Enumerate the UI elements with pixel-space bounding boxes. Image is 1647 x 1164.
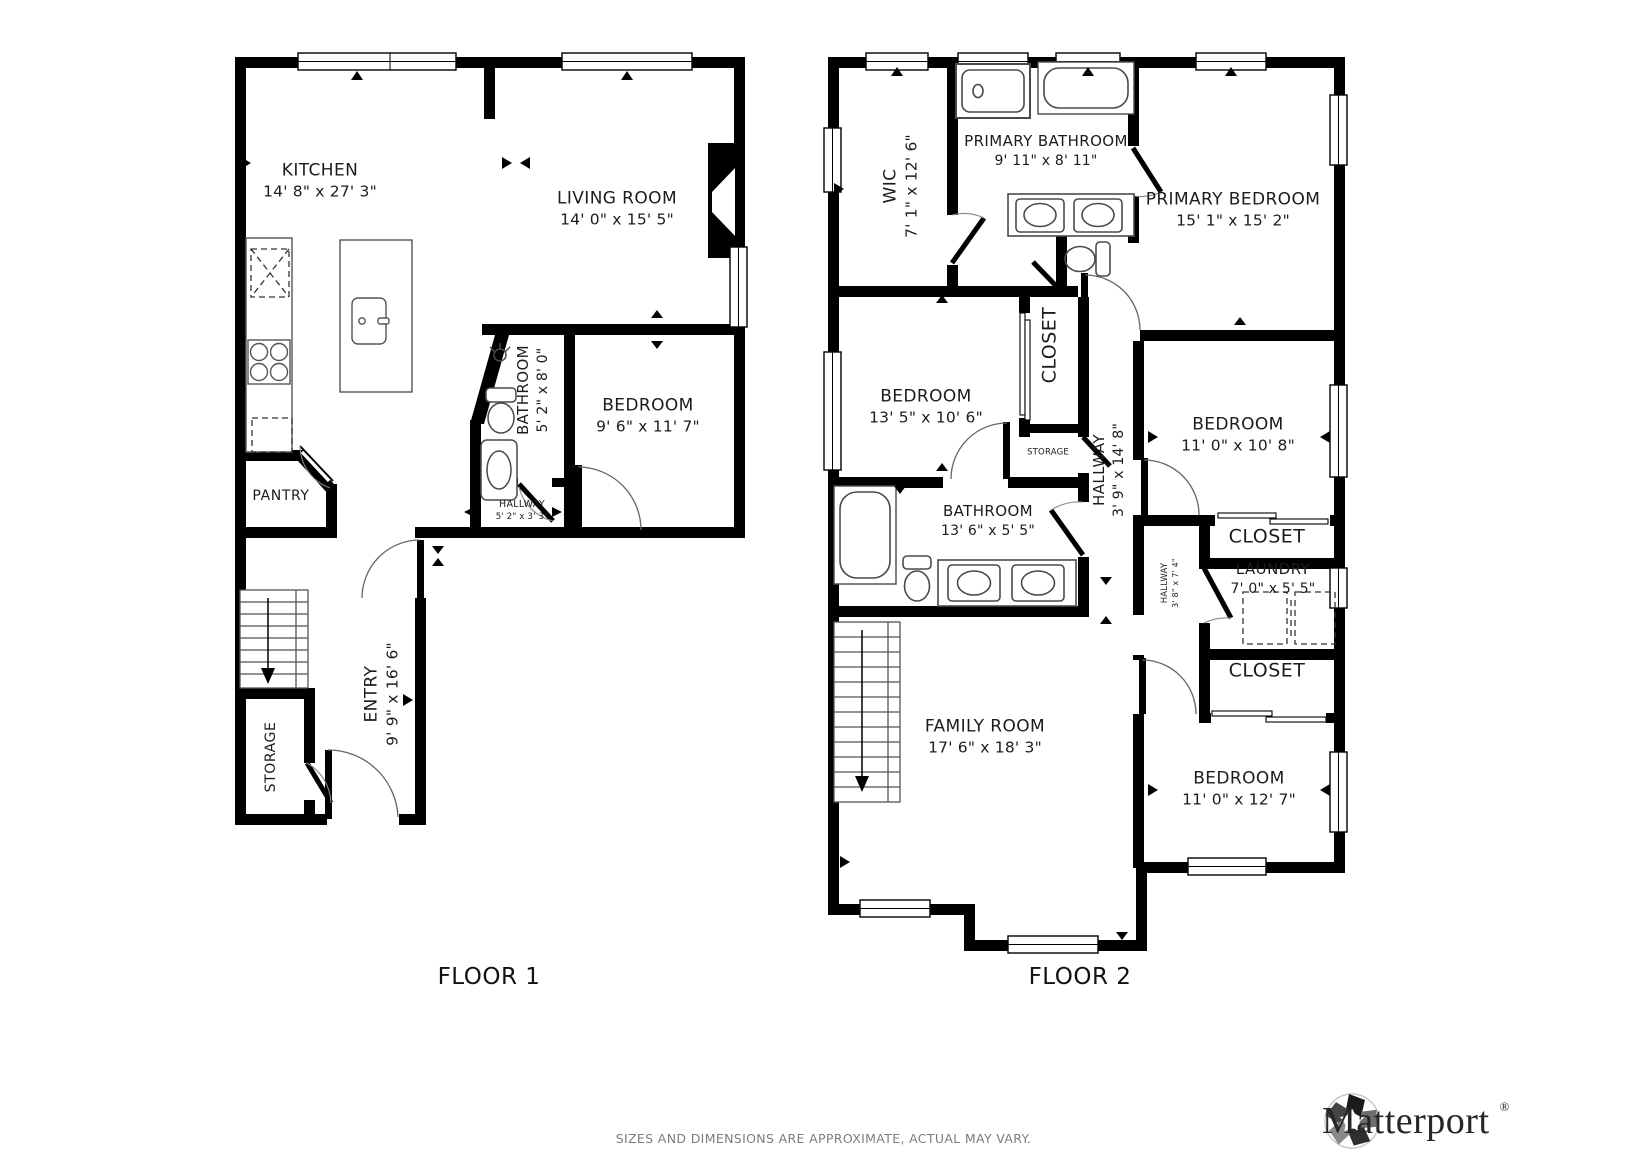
- room-name: BEDROOM: [1181, 414, 1295, 436]
- room-name: PRIMARY BATHROOM: [964, 132, 1128, 152]
- room-dims: 14' 0" x 15' 5": [557, 210, 677, 230]
- room-label-pantry: PANTRY: [252, 487, 309, 505]
- room-label-closet-b: CLOSET: [1229, 524, 1306, 549]
- room-dims: 9' 9" x 16' 6": [383, 642, 403, 746]
- room-label-entry: ENTRY 9' 9" x 16' 6": [361, 642, 404, 746]
- room-label-bedroom-a: BEDROOM 13' 5" x 10' 6": [869, 386, 983, 429]
- room-dims: 7' 0" x 5' 5": [1231, 580, 1316, 598]
- room-label-primary-bathroom: PRIMARY BATHROOM 9' 11" x 8' 11": [964, 132, 1128, 170]
- floor2-title: FLOOR 2: [1029, 964, 1132, 990]
- pantry-angled-wall: [300, 455, 332, 490]
- room-name: LAUNDRY: [1231, 560, 1316, 580]
- room-label-hallway-f2: HALLWAY 3' 9" x 14' 8": [1090, 423, 1128, 517]
- laundry-appliances-dashed: [1243, 592, 1335, 644]
- floor1-title: FLOOR 1: [438, 964, 541, 990]
- room-dims: 17' 6" x 18' 3": [925, 738, 1045, 758]
- floor2-stairs: [834, 622, 900, 802]
- room-label-wic: WIC 7' 1" x 12' 6": [880, 134, 923, 238]
- kitchen-island: [340, 240, 412, 392]
- room-name: PRIMARY BEDROOM: [1146, 189, 1321, 211]
- room-dims: 7' 1" x 12' 6": [902, 134, 922, 238]
- room-dims: 9' 6" x 11' 7": [596, 417, 700, 437]
- room-name: HALLWAY: [496, 499, 549, 512]
- room-label-bathroom-f2: BATHROOM 13' 6" x 5' 5": [941, 502, 1035, 540]
- floorplan-page: { "floor1": { "title": "FLOOR 1", "rooms…: [0, 0, 1647, 1164]
- room-name: CLOSET: [1037, 307, 1062, 384]
- room-label-storage-f1: STORAGE: [262, 722, 280, 793]
- room-name: BEDROOM: [596, 395, 700, 417]
- room-name: LIVING ROOM: [557, 188, 677, 210]
- room-name: FAMILY ROOM: [925, 716, 1045, 738]
- room-label-bedroom-b: BEDROOM 11' 0" x 10' 8": [1181, 414, 1295, 457]
- room-label-bedroom-c: BEDROOM 11' 0" x 12' 7": [1182, 768, 1296, 811]
- floorplan-drawing: [0, 0, 1647, 1164]
- room-name: ENTRY: [361, 642, 383, 746]
- room-dims: 14' 8" x 27' 3": [263, 182, 377, 202]
- matterport-wordmark: Matterport: [1322, 1099, 1490, 1143]
- room-name: BATHROOM: [941, 502, 1035, 522]
- room-label-bedroom-f1: BEDROOM 9' 6" x 11' 7": [596, 395, 700, 438]
- room-label-bathroom-f1: BATHROOM 5' 2" x 8' 0": [514, 345, 552, 435]
- room-dims: 11' 0" x 10' 8": [1181, 436, 1295, 456]
- room-name: HALLWAY: [1160, 558, 1171, 608]
- room-name: BEDROOM: [1182, 768, 1296, 790]
- room-label-kitchen: KITCHEN 14' 8" x 27' 3": [263, 160, 377, 203]
- room-label-living-room: LIVING ROOM 14' 0" x 15' 5": [557, 188, 677, 231]
- room-name: WIC: [880, 134, 902, 238]
- room-name: KITCHEN: [263, 160, 377, 182]
- room-dims: 13' 6" x 5' 5": [941, 522, 1035, 540]
- room-label-hallway-f1: HALLWAY 5' 2" x 3' 3": [496, 499, 549, 523]
- room-dims: 5' 2" x 8' 0": [534, 345, 552, 435]
- room-label-family-room: FAMILY ROOM 17' 6" x 18' 3": [925, 716, 1045, 759]
- room-label-hallway-small: HALLWAY 3' 8" x 7' 4": [1160, 558, 1182, 608]
- room-name: CLOSET: [1229, 658, 1306, 683]
- room-name: PANTRY: [252, 487, 309, 505]
- registered-trademark-symbol: ®: [1500, 1099, 1510, 1115]
- room-name: CLOSET: [1229, 524, 1306, 549]
- room-name: BEDROOM: [869, 386, 983, 408]
- room-label-laundry: LAUNDRY 7' 0" x 5' 5": [1231, 560, 1316, 598]
- room-name: STORAGE: [262, 722, 280, 793]
- matterport-logo: Matterport®: [1322, 1090, 1509, 1152]
- room-dims: 3' 9" x 14' 8": [1110, 423, 1128, 517]
- room-label-storage-f2: STORAGE: [1027, 447, 1069, 458]
- room-label-closet-c: CLOSET: [1229, 658, 1306, 683]
- room-dims: 13' 5" x 10' 6": [869, 408, 983, 428]
- room-name: BATHROOM: [514, 345, 534, 435]
- room-label-primary-bedroom: PRIMARY BEDROOM 15' 1" x 15' 2": [1146, 189, 1321, 232]
- room-name: HALLWAY: [1090, 423, 1110, 517]
- floor1-stairs: [240, 590, 308, 688]
- room-label-closet-a: CLOSET: [1037, 307, 1062, 384]
- room-dims: 9' 11" x 8' 11": [964, 152, 1128, 170]
- room-dims: 11' 0" x 12' 7": [1182, 790, 1296, 810]
- kitchen-counter: [246, 238, 292, 452]
- room-dims: 3' 8" x 7' 4": [1171, 558, 1182, 608]
- room-dims: 15' 1" x 15' 2": [1146, 211, 1321, 231]
- room-name: STORAGE: [1027, 447, 1069, 458]
- room-dims: 5' 2" x 3' 3": [496, 512, 549, 523]
